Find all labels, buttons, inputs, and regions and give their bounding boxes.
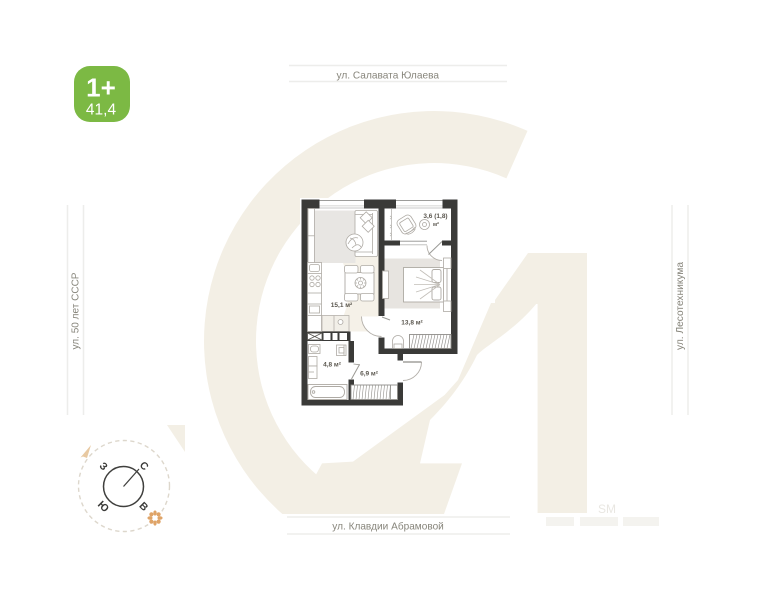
svg-text:15,1 м²: 15,1 м² [331,302,353,309]
svg-text:С: С [137,459,151,473]
svg-text:ул. 50 лет СССР: ул. 50 лет СССР [70,273,82,350]
svg-text:4,8 м²: 4,8 м² [323,362,342,369]
svg-text:6,9 м²: 6,9 м² [360,371,379,378]
svg-text:3,6 (1,8): 3,6 (1,8) [423,213,447,220]
svg-text:м²: м² [433,221,439,228]
svg-text:ул. Клавдии Абрамовой: ул. Клавдии Абрамовой [332,521,444,533]
svg-text:41,4: 41,4 [86,102,117,119]
svg-text:SM: SM [598,502,616,516]
svg-text:З: З [97,460,110,473]
svg-text:ул. Салавата Юлаева: ул. Салавата Юлаева [337,70,440,82]
svg-text:13,8 м²: 13,8 м² [401,320,423,327]
svg-text:1+: 1+ [86,73,116,103]
svg-text:ул. Лесотехникума: ул. Лесотехникума [674,262,686,350]
